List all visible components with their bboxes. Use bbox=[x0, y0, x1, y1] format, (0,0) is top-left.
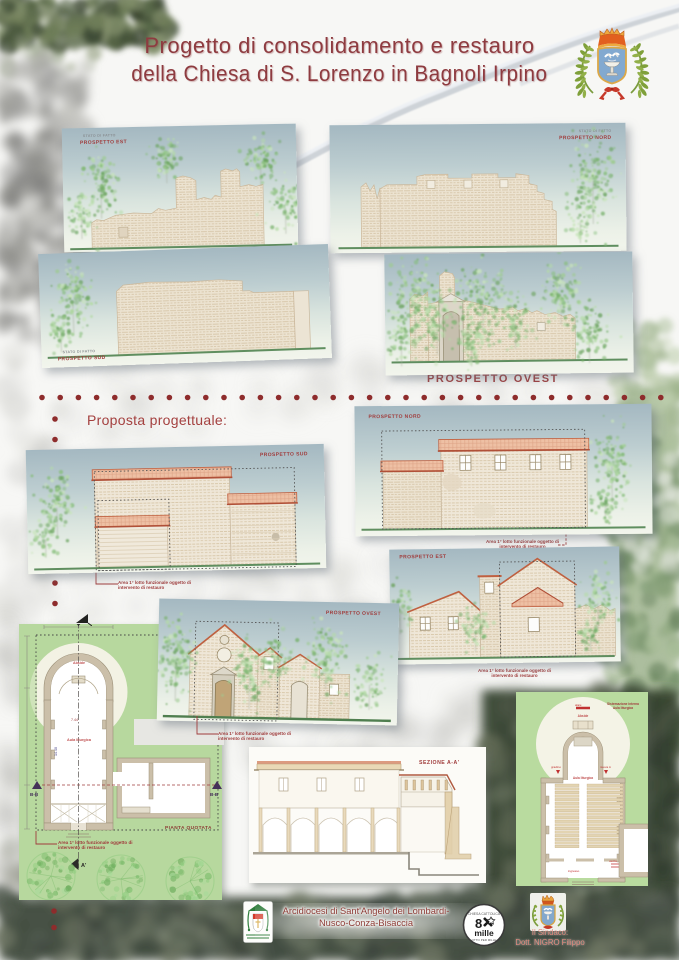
svg-text:14.40: 14.40 bbox=[54, 747, 58, 756]
svg-text:uscita: uscita bbox=[609, 859, 617, 863]
svg-text:7.44: 7.44 bbox=[71, 718, 78, 722]
svg-text:nuova A: nuova A bbox=[600, 765, 611, 769]
svg-text:B-B: B-B bbox=[210, 792, 219, 797]
svg-text:gradino: gradino bbox=[551, 765, 561, 769]
svg-text:CHIESA CATTOLICA: CHIESA CATTOLICA bbox=[468, 912, 501, 916]
svg-text:altare: altare bbox=[575, 703, 582, 707]
svg-text:ingresso: ingresso bbox=[568, 869, 580, 873]
svg-text:mille: mille bbox=[474, 928, 494, 938]
svg-text:B-B: B-B bbox=[30, 792, 39, 797]
svg-text:OTTO PER MILLE: OTTO PER MILLE bbox=[472, 938, 497, 942]
